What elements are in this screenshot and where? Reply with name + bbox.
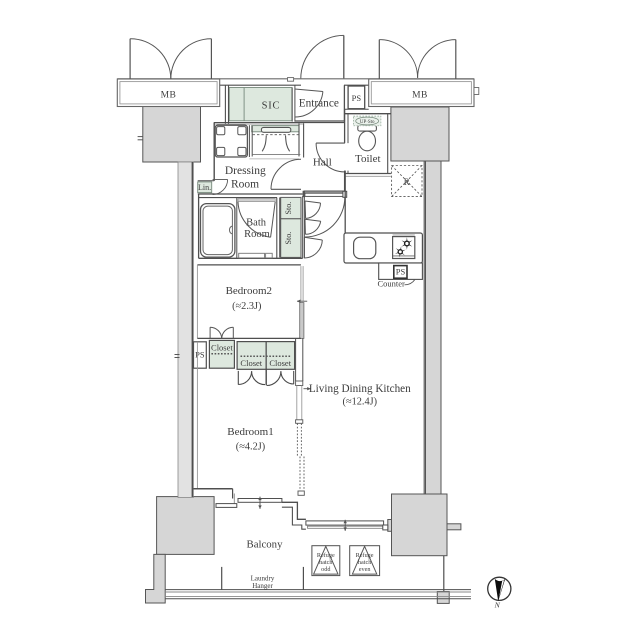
svg-text:PS: PS xyxy=(396,267,406,277)
svg-text:hatch: hatch xyxy=(358,559,372,566)
svg-text:Closet: Closet xyxy=(269,358,291,368)
svg-text:Sto.: Sto. xyxy=(284,202,293,215)
svg-text:Lin.: Lin. xyxy=(198,183,211,192)
svg-text:odd: odd xyxy=(321,566,331,573)
svg-text:MB: MB xyxy=(161,90,177,100)
svg-text:Sto.: Sto. xyxy=(284,232,293,245)
svg-text:SIC: SIC xyxy=(262,100,281,111)
svg-text:Living Dining Kitchen: Living Dining Kitchen xyxy=(309,383,411,395)
svg-text:PS: PS xyxy=(195,349,205,359)
svg-text:UP·Sto: UP·Sto xyxy=(360,120,375,125)
svg-text:Bedroom2: Bedroom2 xyxy=(226,285,272,297)
svg-text:Toilet: Toilet xyxy=(355,153,381,165)
svg-text:PS: PS xyxy=(352,93,362,103)
svg-text:N: N xyxy=(494,600,501,609)
svg-text:Hanger: Hanger xyxy=(252,582,273,590)
svg-text:MB: MB xyxy=(412,90,428,100)
svg-text:Bedroom1: Bedroom1 xyxy=(227,426,273,438)
svg-text:Dressing: Dressing xyxy=(225,165,266,177)
svg-text:hatch: hatch xyxy=(319,559,333,566)
svg-text:(≈4.2J): (≈4.2J) xyxy=(236,442,265,453)
svg-text:Balcony: Balcony xyxy=(247,538,284,550)
svg-text:Closet: Closet xyxy=(240,358,262,368)
svg-text:Counter: Counter xyxy=(378,279,406,289)
svg-text:(≈2.3J): (≈2.3J) xyxy=(232,301,261,312)
svg-text:R: R xyxy=(404,177,410,187)
svg-text:even: even xyxy=(359,566,371,573)
svg-text:Refuge: Refuge xyxy=(356,552,374,559)
svg-text:Closet: Closet xyxy=(211,343,233,353)
svg-text:Refuge: Refuge xyxy=(317,552,335,559)
svg-text:(≈12.4J): (≈12.4J) xyxy=(343,397,378,408)
svg-text:Room: Room xyxy=(244,229,270,240)
svg-text:Room: Room xyxy=(231,179,259,191)
svg-text:Hall: Hall xyxy=(313,156,332,168)
